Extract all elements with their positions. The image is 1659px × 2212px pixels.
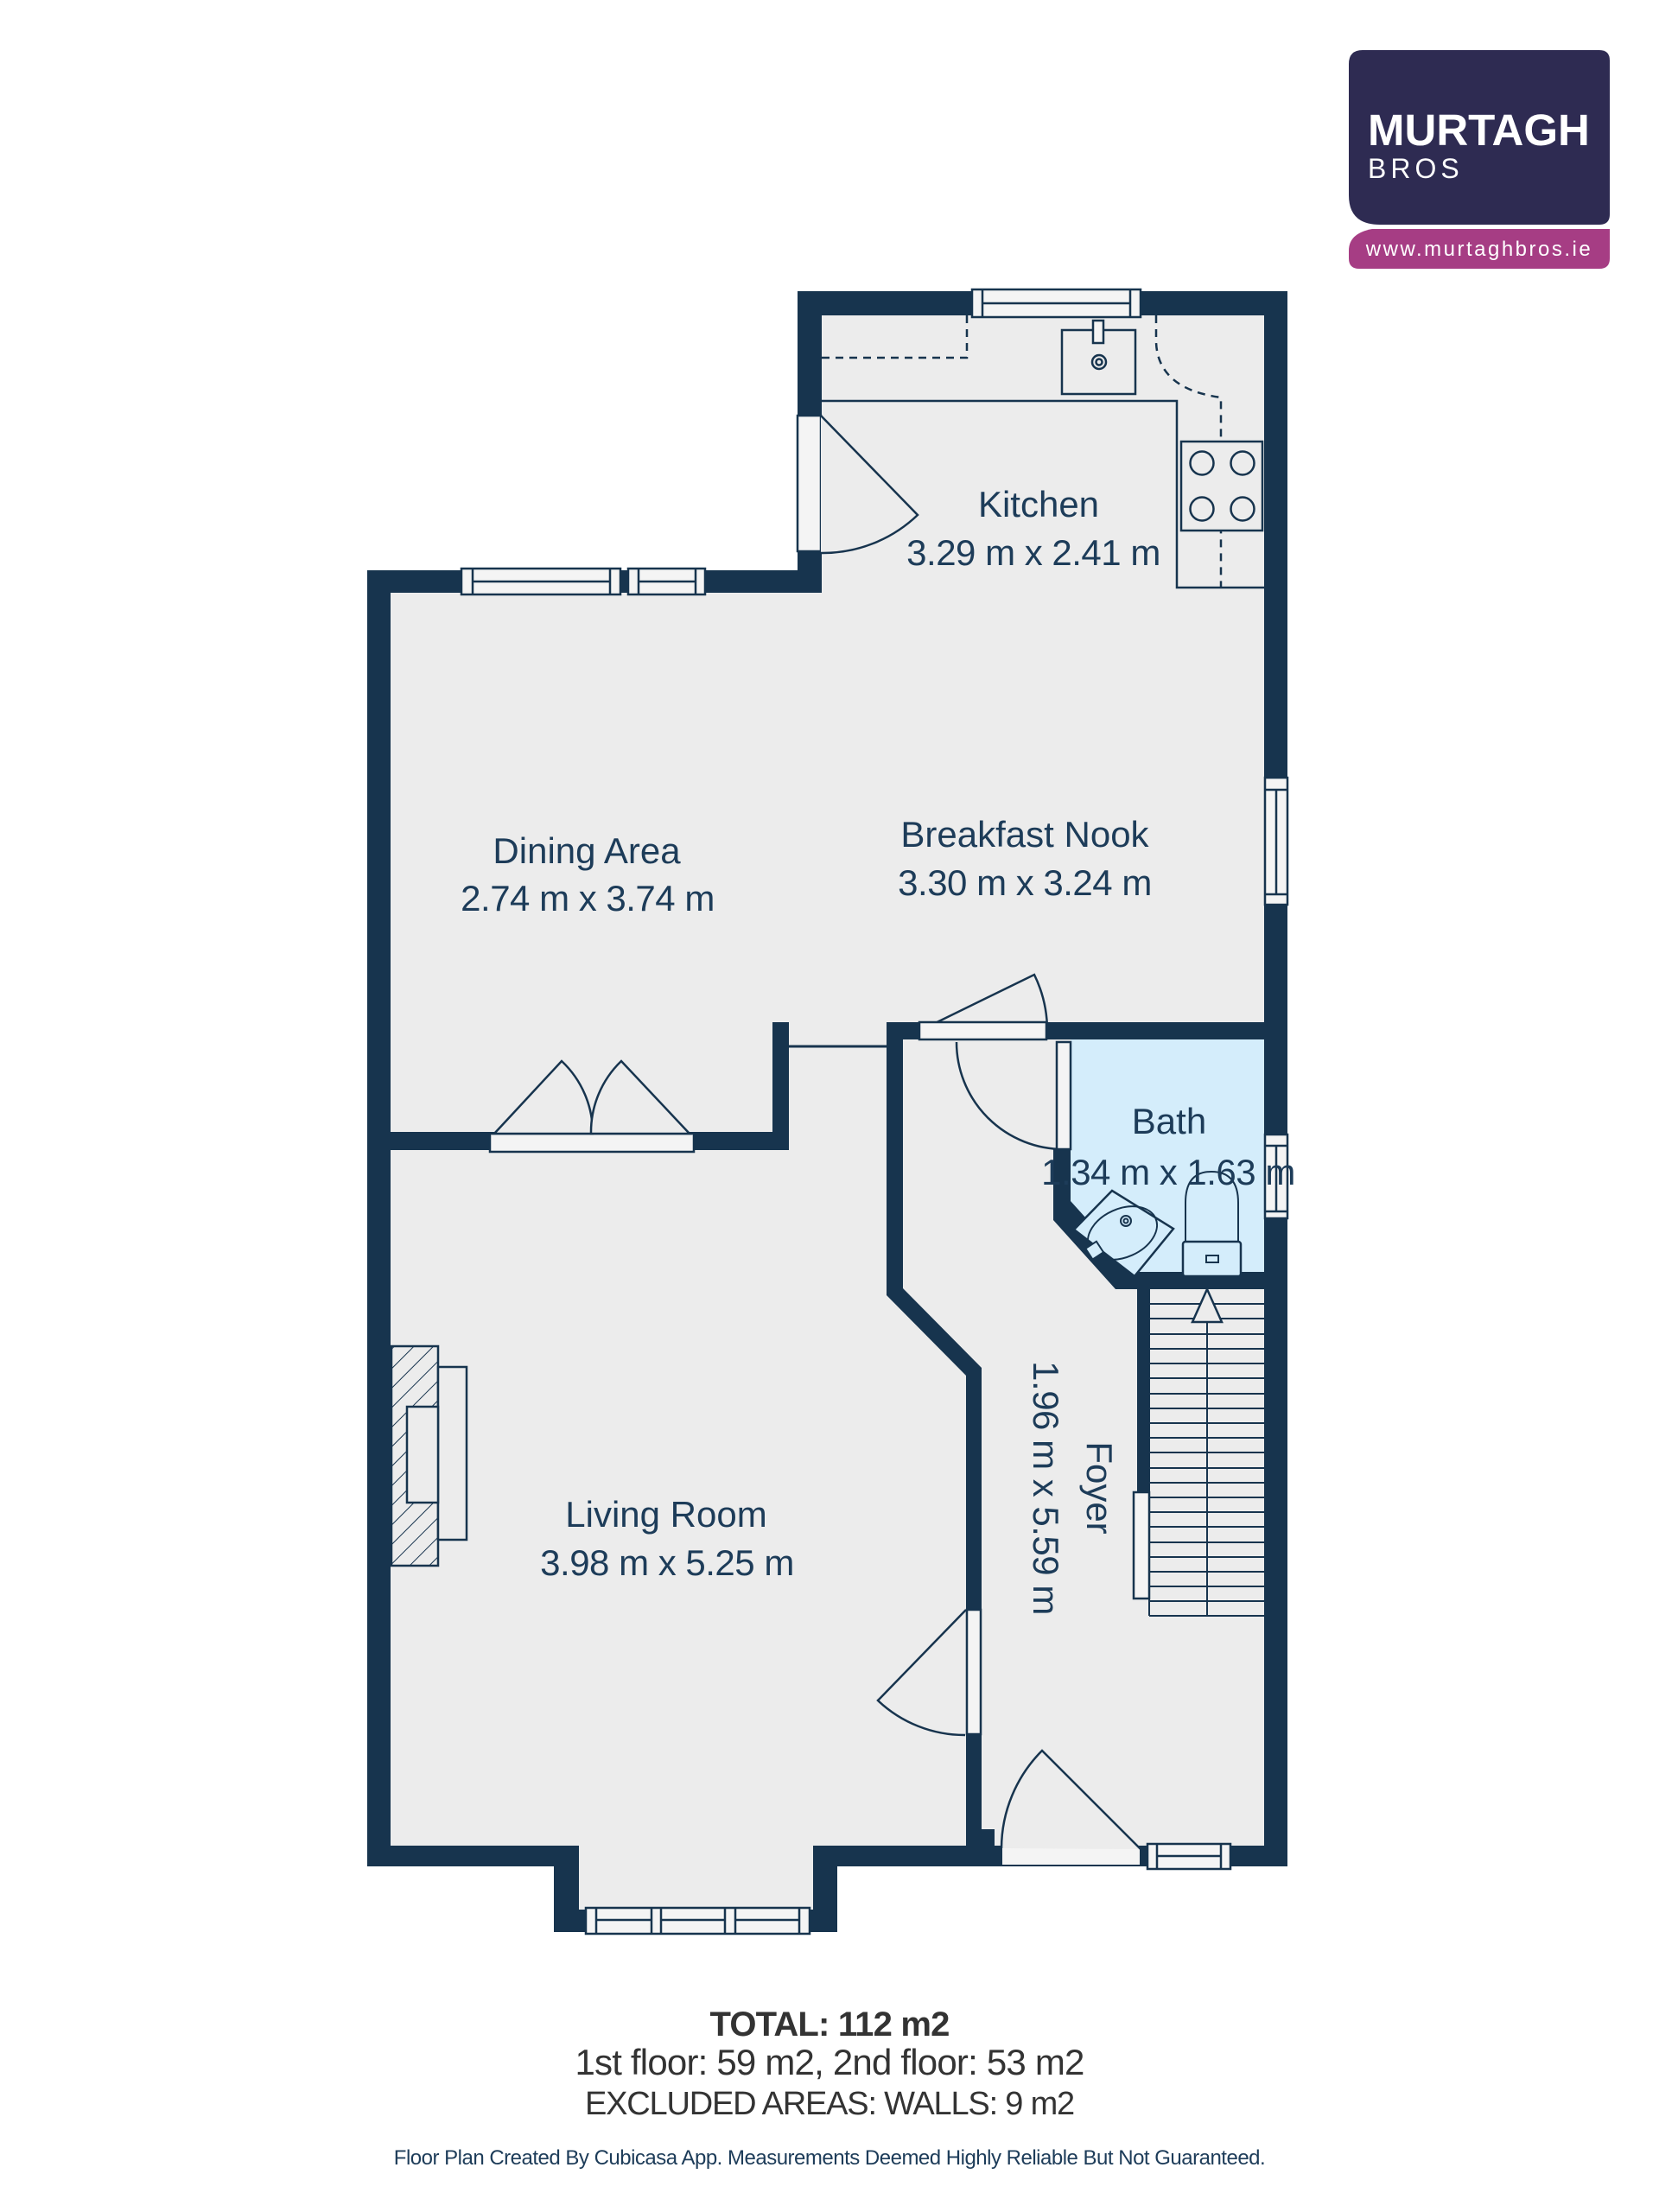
svg-text:BROS: BROS — [1368, 153, 1464, 184]
svg-text:MURTAGH: MURTAGH — [1368, 105, 1590, 155]
svg-text:3.98 m x 5.25 m: 3.98 m x 5.25 m — [540, 1542, 794, 1583]
svg-text:1st floor: 59 m2, 2nd floor: 5: 1st floor: 59 m2, 2nd floor: 53 m2 — [575, 2042, 1084, 2082]
svg-text:Living Room: Living Room — [565, 1494, 766, 1535]
svg-text:Breakfast Nook: Breakfast Nook — [900, 814, 1149, 855]
svg-text:1.34 m x 1.63 m: 1.34 m x 1.63 m — [1041, 1152, 1295, 1192]
svg-text:EXCLUDED AREAS: WALLS: 9 m2: EXCLUDED AREAS: WALLS: 9 m2 — [585, 2086, 1074, 2122]
svg-text:Dining Area: Dining Area — [493, 830, 681, 871]
svg-text:3.29 m x 2.41 m: 3.29 m x 2.41 m — [906, 532, 1160, 573]
svg-text:TOTAL: 112 m2: TOTAL: 112 m2 — [709, 2005, 949, 2044]
svg-text:Bath: Bath — [1132, 1101, 1206, 1141]
svg-text:www.murtaghbros.ie: www.murtaghbros.ie — [1365, 238, 1592, 261]
svg-text:3.30 m x 3.24 m: 3.30 m x 3.24 m — [898, 862, 1152, 903]
svg-text:Kitchen: Kitchen — [978, 484, 1099, 524]
svg-text:Foyer: Foyer — [1079, 1441, 1120, 1534]
svg-text:Floor Plan Created By Cubicasa: Floor Plan Created By Cubicasa App. Meas… — [394, 2146, 1265, 2170]
svg-text:1.96 m x 5.59 m: 1.96 m x 5.59 m — [1026, 1361, 1066, 1615]
svg-text:2.74 m x 3.74 m: 2.74 m x 3.74 m — [461, 878, 715, 918]
